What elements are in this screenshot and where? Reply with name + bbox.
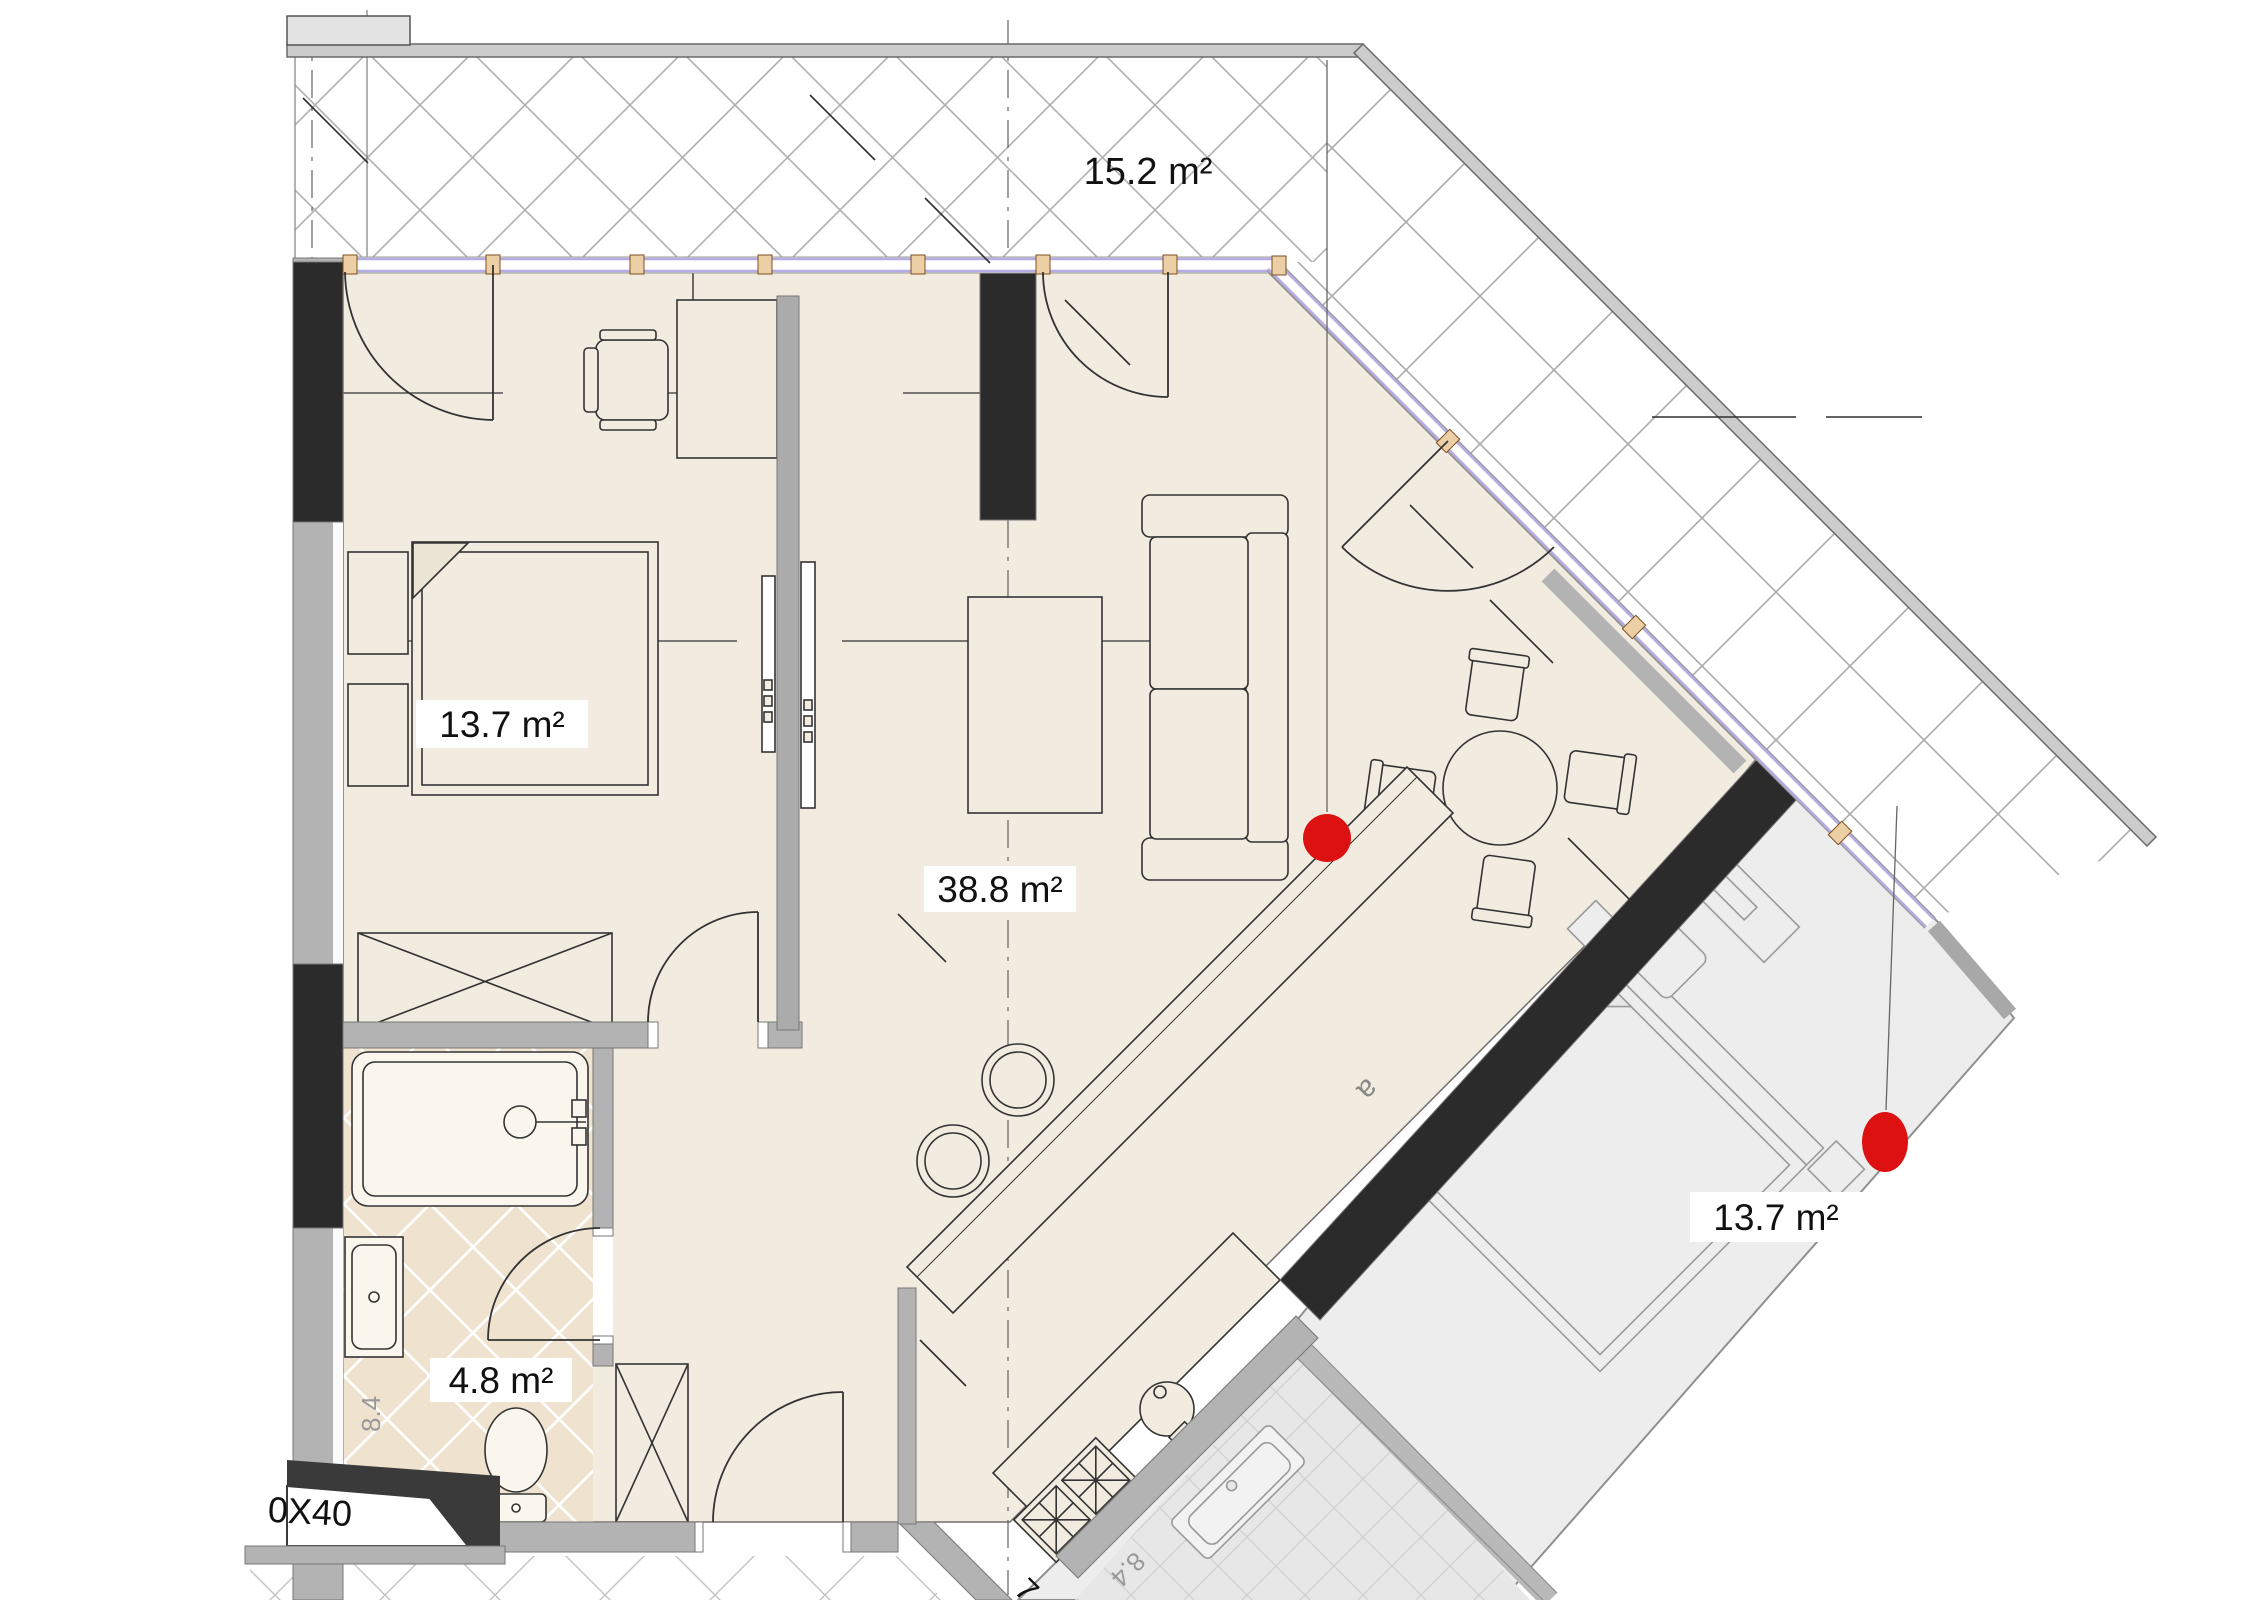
bed: [412, 542, 658, 795]
shaft-size-note: 0X40: [267, 1492, 353, 1532]
bedroom-tv-unit: [762, 576, 775, 752]
floor-plan: 15.2 m² 13.7 m² 38.8 m² 4.8 m² 13.7 m² 0…: [0, 0, 2263, 1600]
bathroom-sink: [345, 1237, 403, 1357]
balcony-area-label: 15.2 m²: [1063, 148, 1233, 196]
nightstand: [348, 552, 408, 654]
stool: [982, 1044, 1054, 1116]
desk: [677, 300, 777, 458]
bath-dimension-note: 8.4: [358, 1396, 384, 1432]
sofa: [1142, 495, 1288, 880]
wall-black-segment: [293, 262, 343, 522]
neighbor-bedroom-area-label: 13.7 m²: [1690, 1192, 1862, 1242]
desk-chair: [584, 330, 668, 430]
adjacent-structure: [287, 16, 410, 45]
door-jamb: [843, 1522, 851, 1552]
entry-pillar: [980, 264, 1036, 520]
door-jamb: [758, 1022, 768, 1048]
door-jamb: [648, 1022, 658, 1048]
coffee-table: [968, 597, 1102, 813]
balcony-railing: [287, 44, 1363, 57]
bathtub: [352, 1052, 588, 1206]
floor-plan-canvas: [0, 0, 2263, 1600]
nightstand: [348, 684, 408, 786]
hall-wardrobe: [616, 1364, 688, 1522]
bedroom-area-label: 13.7 m²: [416, 700, 588, 748]
bathroom-area-label: 4.8 m²: [430, 1358, 572, 1402]
marker-living-room[interactable]: [1303, 814, 1351, 862]
stool: [917, 1125, 989, 1197]
partition-wall: [777, 296, 799, 1030]
marker-neighbor-bedroom[interactable]: [1862, 1112, 1908, 1172]
dining-table: [1443, 731, 1557, 845]
door-jamb: [695, 1522, 703, 1552]
bathroom-wall: [593, 1048, 613, 1228]
living-tv-unit: [801, 562, 815, 808]
bedroom-wall: [343, 1022, 648, 1048]
wall-black-segment: [293, 964, 343, 1228]
kitchen-wall-stub: [898, 1288, 916, 1524]
living-area-label: 38.8 m²: [924, 866, 1076, 912]
